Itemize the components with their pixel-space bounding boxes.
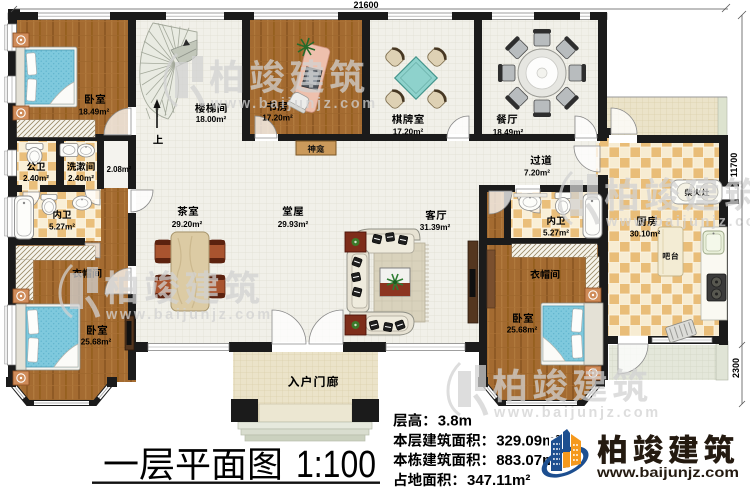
svg-text:2.40m²: 2.40m² [68, 174, 94, 183]
svg-text:21600: 21600 [353, 0, 378, 10]
svg-text:www.baijunjz.com: www.baijunjz.com [210, 96, 378, 112]
svg-text:www.baijunjz.com: www.baijunjz.com [605, 214, 750, 230]
svg-text:29.20m²: 29.20m² [172, 220, 203, 229]
svg-text:18.49m²: 18.49m² [493, 128, 524, 137]
svg-text:11700: 11700 [729, 153, 739, 178]
svg-text:25.68m²: 25.68m² [507, 326, 538, 335]
svg-text:17.20m²: 17.20m² [393, 128, 424, 137]
svg-text:30.10m²: 30.10m² [630, 230, 661, 239]
svg-text:2.08m²: 2.08m² [107, 165, 132, 174]
svg-text:www.baijunjz.com: www.baijunjz.com [596, 464, 739, 480]
svg-text:25.68m²: 25.68m² [81, 338, 112, 347]
svg-text:17.20m²: 17.20m² [262, 114, 293, 123]
svg-text:18.00m²: 18.00m² [196, 115, 227, 124]
svg-text:2.40m²: 2.40m² [23, 174, 49, 183]
svg-text:3.8m: 3.8m [438, 413, 472, 430]
svg-text:www.baijunjz.com: www.baijunjz.com [493, 405, 661, 421]
svg-text:29.93m²: 29.93m² [278, 220, 309, 229]
svg-text:5.27m²: 5.27m² [543, 229, 569, 238]
svg-text:5.27m²: 5.27m² [49, 223, 75, 232]
svg-text:2300: 2300 [731, 358, 741, 378]
svg-text:1:100: 1:100 [296, 444, 376, 486]
svg-text:18.49m²: 18.49m² [79, 108, 110, 117]
svg-text:www.baijunjz.com: www.baijunjz.com [105, 307, 273, 323]
svg-text:347.11m²: 347.11m² [467, 472, 530, 489]
svg-text:7.20m²: 7.20m² [524, 169, 550, 178]
svg-text:31.39m²: 31.39m² [420, 223, 451, 232]
